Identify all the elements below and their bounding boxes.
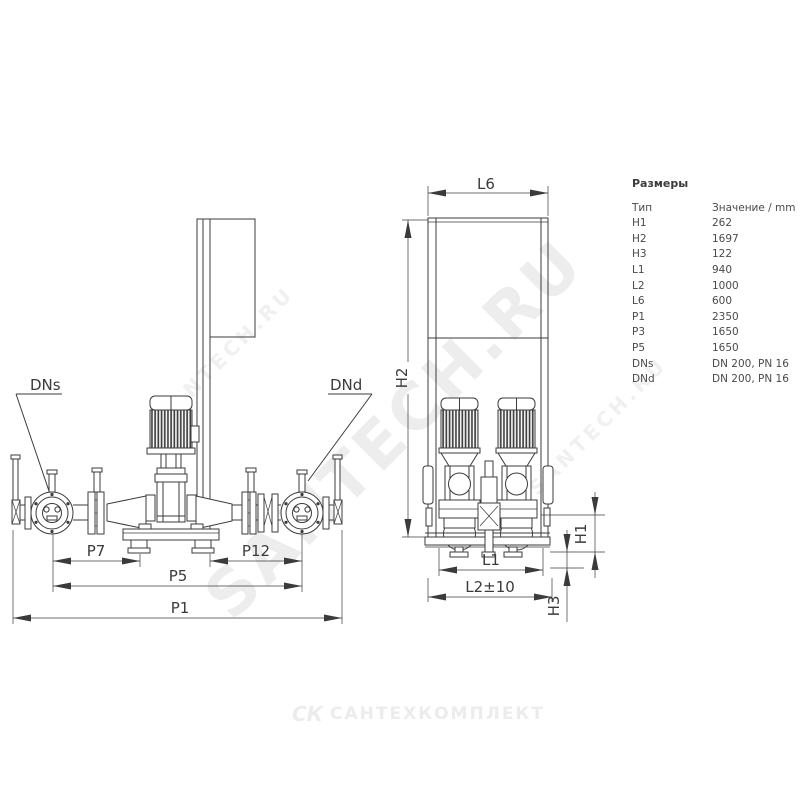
label-h1: H1 [572,524,590,545]
side-pump-1 [439,398,480,550]
front-base-frame [123,524,219,553]
discharge-butterfly-valve [281,470,323,534]
label-p1: P1 [171,599,190,617]
label-l2: L2±10 [465,578,515,596]
stand-column [197,219,255,529]
label-h3: H3 [545,596,563,617]
label-l6: L6 [477,175,495,193]
discharge-line [196,455,342,534]
suction-butterfly-valve [31,470,73,534]
table-row: P3 1650 [632,325,797,341]
front-dimensions: P7 P12 P5 P1 [13,530,342,624]
table-row: DNd DN 200, PN 16 [632,372,797,388]
label-dnd: DNd [330,376,362,394]
col-header-value: Значение / mm [712,201,797,217]
suction-stub-valve [11,455,31,529]
label-l1: L1 [482,551,500,569]
table-row: L6 600 [632,294,797,310]
label-dns: DNs [30,376,61,394]
table-row: L1 940 [632,263,797,279]
table-row: H3 122 [632,247,797,263]
technical-drawing-page: SANTECH.RU SANTECH.RU SANTECH.RU [0,0,800,800]
label-h2: H2 [393,368,411,389]
label-p12: P12 [242,542,270,560]
table-row: DNs DN 200, PN 16 [632,357,797,373]
table-row: L2 1000 [632,279,797,295]
center-manifold [478,461,500,530]
pump-set-drawing: DNs DNd P7 [0,0,800,800]
table-row: H2 1697 [632,232,797,248]
col-header-type: Тип [632,201,712,217]
side-dimensions: L6 H2 H1 H3 [393,175,605,622]
discharge-stub-valve [323,455,342,529]
table-row: H1 262 [632,216,797,232]
label-p5: P5 [169,567,188,585]
table-row: P5 1650 [632,341,797,357]
check-valve [256,494,281,532]
suction-line [11,455,146,534]
dimensions-table: Размеры Тип Значение / mm H1 262 H2 1697… [632,176,797,388]
terminal-box [191,426,199,442]
table-row: P1 2350 [632,310,797,326]
label-p7: P7 [87,542,106,560]
side-view: L6 H2 H1 H3 [393,175,605,622]
front-view: DNs DNd P7 [11,219,372,624]
dimensions-table-title: Размеры [632,176,797,192]
front-pump-motor [146,396,199,522]
brand-icon: СК [292,702,323,726]
side-pump-2 [496,398,537,550]
brand-text: САНТЕХКОМПЛЕКТ [330,704,545,724]
table-header-row: Тип Значение / mm [632,201,797,217]
footer-logo: СК САНТЕХКОМПЛЕКТ [292,700,502,728]
